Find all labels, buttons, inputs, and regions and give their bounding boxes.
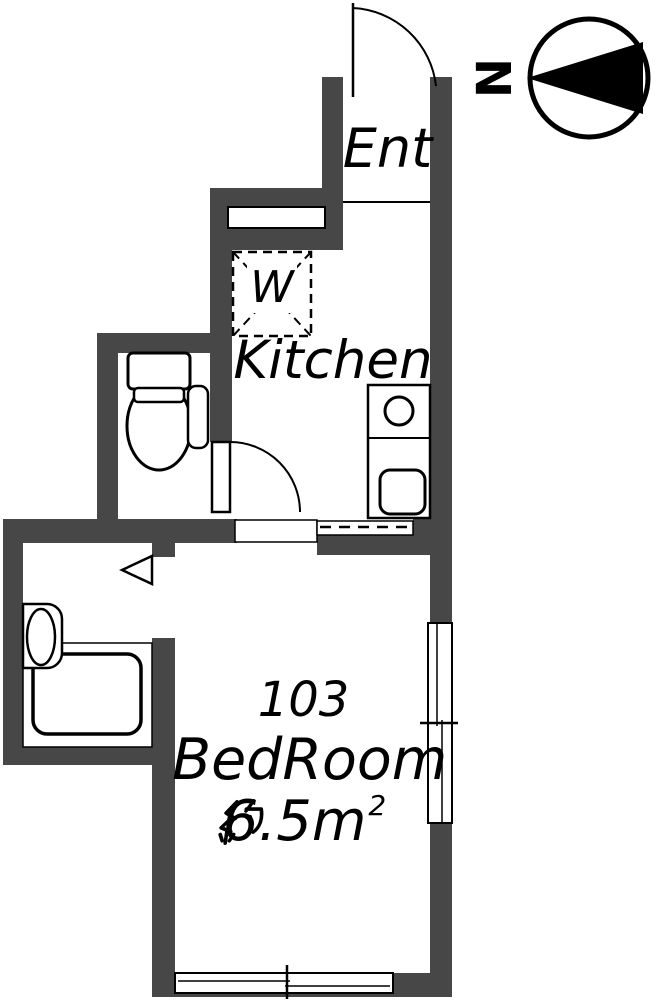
room-number-label: 103 [175,676,432,724]
floor-plan: N Ent Kitchen W 103 BedRoom 6.5m2 [0,0,659,1000]
room-area-sup: 2 [368,792,386,820]
bathroom-fixtures [23,556,152,747]
toilet-icon [127,353,208,470]
entrance-label: Ent [340,122,435,176]
kitchen-label: Kitchen [228,334,438,387]
kitchen-counter [368,385,430,518]
room-name-label: BedRoom [172,732,435,789]
sliding-window-bottom [175,965,393,999]
toilet-door-arc [230,442,300,512]
entrance-door [353,3,436,97]
washer-label: W [233,266,311,310]
toilet-door [212,442,300,512]
room-area-label: 6.5m2 [172,794,435,850]
kitchen-window [228,207,325,228]
bathroom-folding-door-icon [122,556,152,584]
north-compass-icon [527,19,648,137]
north-label: N [463,46,527,110]
entrance-door-arc [353,8,436,86]
